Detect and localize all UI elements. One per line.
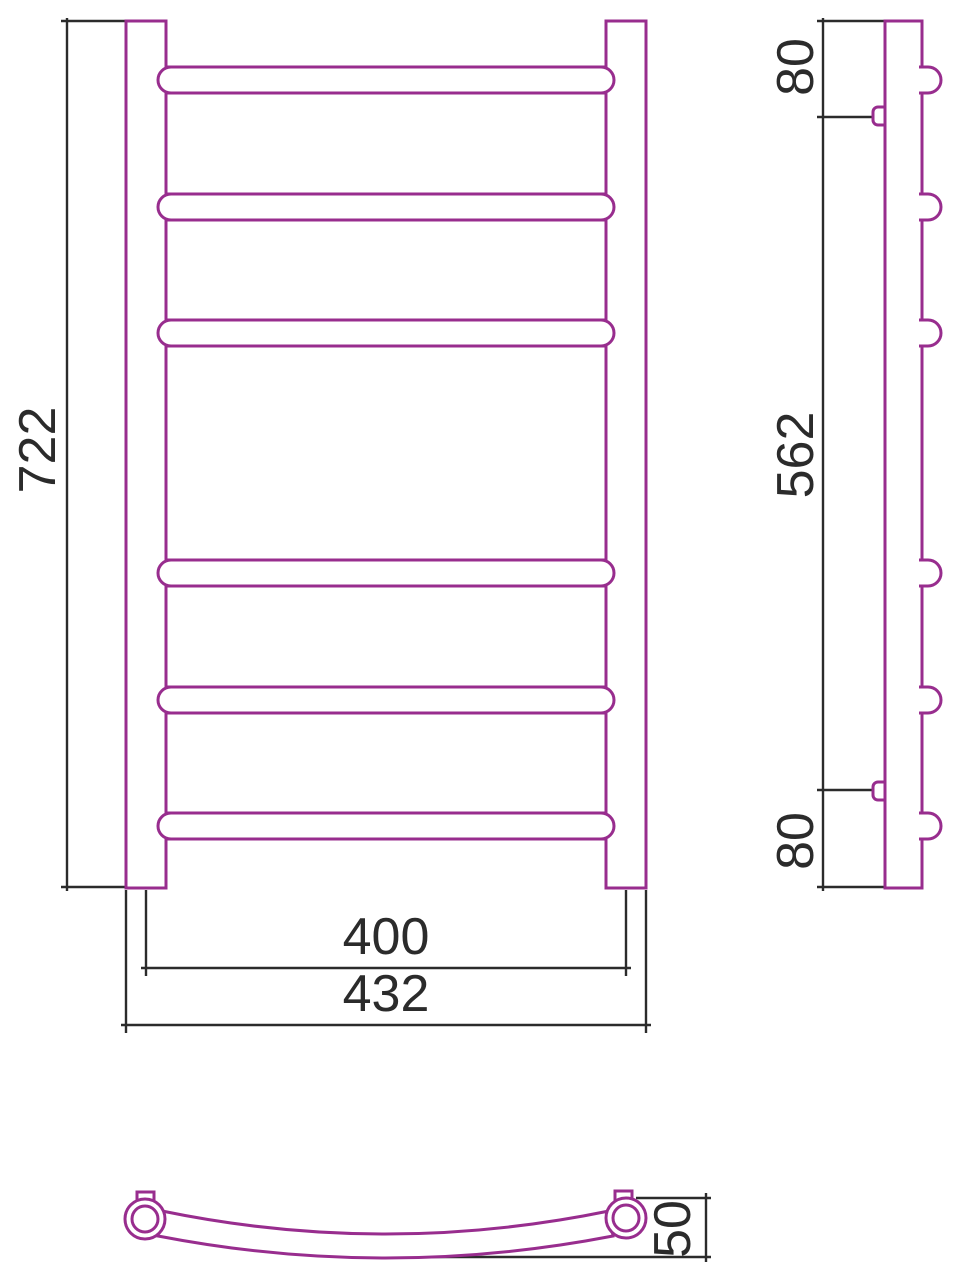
rung (158, 320, 614, 346)
dim-label-80-bottom: 80 (767, 812, 825, 870)
curved-rung-tube (158, 1211, 613, 1258)
side-dimensions: 80 562 80 (767, 18, 885, 891)
side-view: 80 562 80 (767, 18, 941, 891)
front-width-dimensions: 400 432 (121, 890, 651, 1033)
rail-profile (885, 21, 922, 888)
front-view: 722 400 432 (9, 18, 651, 1033)
towel-rail-drawing: 722 400 432 (0, 0, 965, 1280)
rung (158, 687, 614, 713)
front-height-dimension: 722 (9, 18, 126, 891)
left-rail (126, 21, 166, 888)
drawing-canvas: 722 400 432 (0, 0, 965, 1280)
front-rungs (158, 67, 614, 839)
bottom-view: 50 (125, 1191, 711, 1262)
dim-label-722: 722 (9, 407, 67, 494)
dim-label-562: 562 (767, 412, 825, 499)
rung-bump (919, 194, 941, 220)
dim-label-80-top: 80 (767, 38, 825, 96)
rung-bump (919, 320, 941, 346)
rung-bump (919, 67, 941, 93)
dim-label-50: 50 (644, 1200, 702, 1258)
dim-label-432: 432 (343, 965, 430, 1023)
rung-bump (919, 560, 941, 586)
rung (158, 560, 614, 586)
rail-section-inner-right (613, 1205, 639, 1231)
dim-label-400: 400 (343, 908, 430, 966)
rung (158, 67, 614, 93)
rung-bump (919, 687, 941, 713)
rung (158, 194, 614, 220)
right-rail (606, 21, 646, 888)
rung-bump (919, 813, 941, 839)
rung (158, 813, 614, 839)
rail-section-inner-left (132, 1206, 158, 1232)
